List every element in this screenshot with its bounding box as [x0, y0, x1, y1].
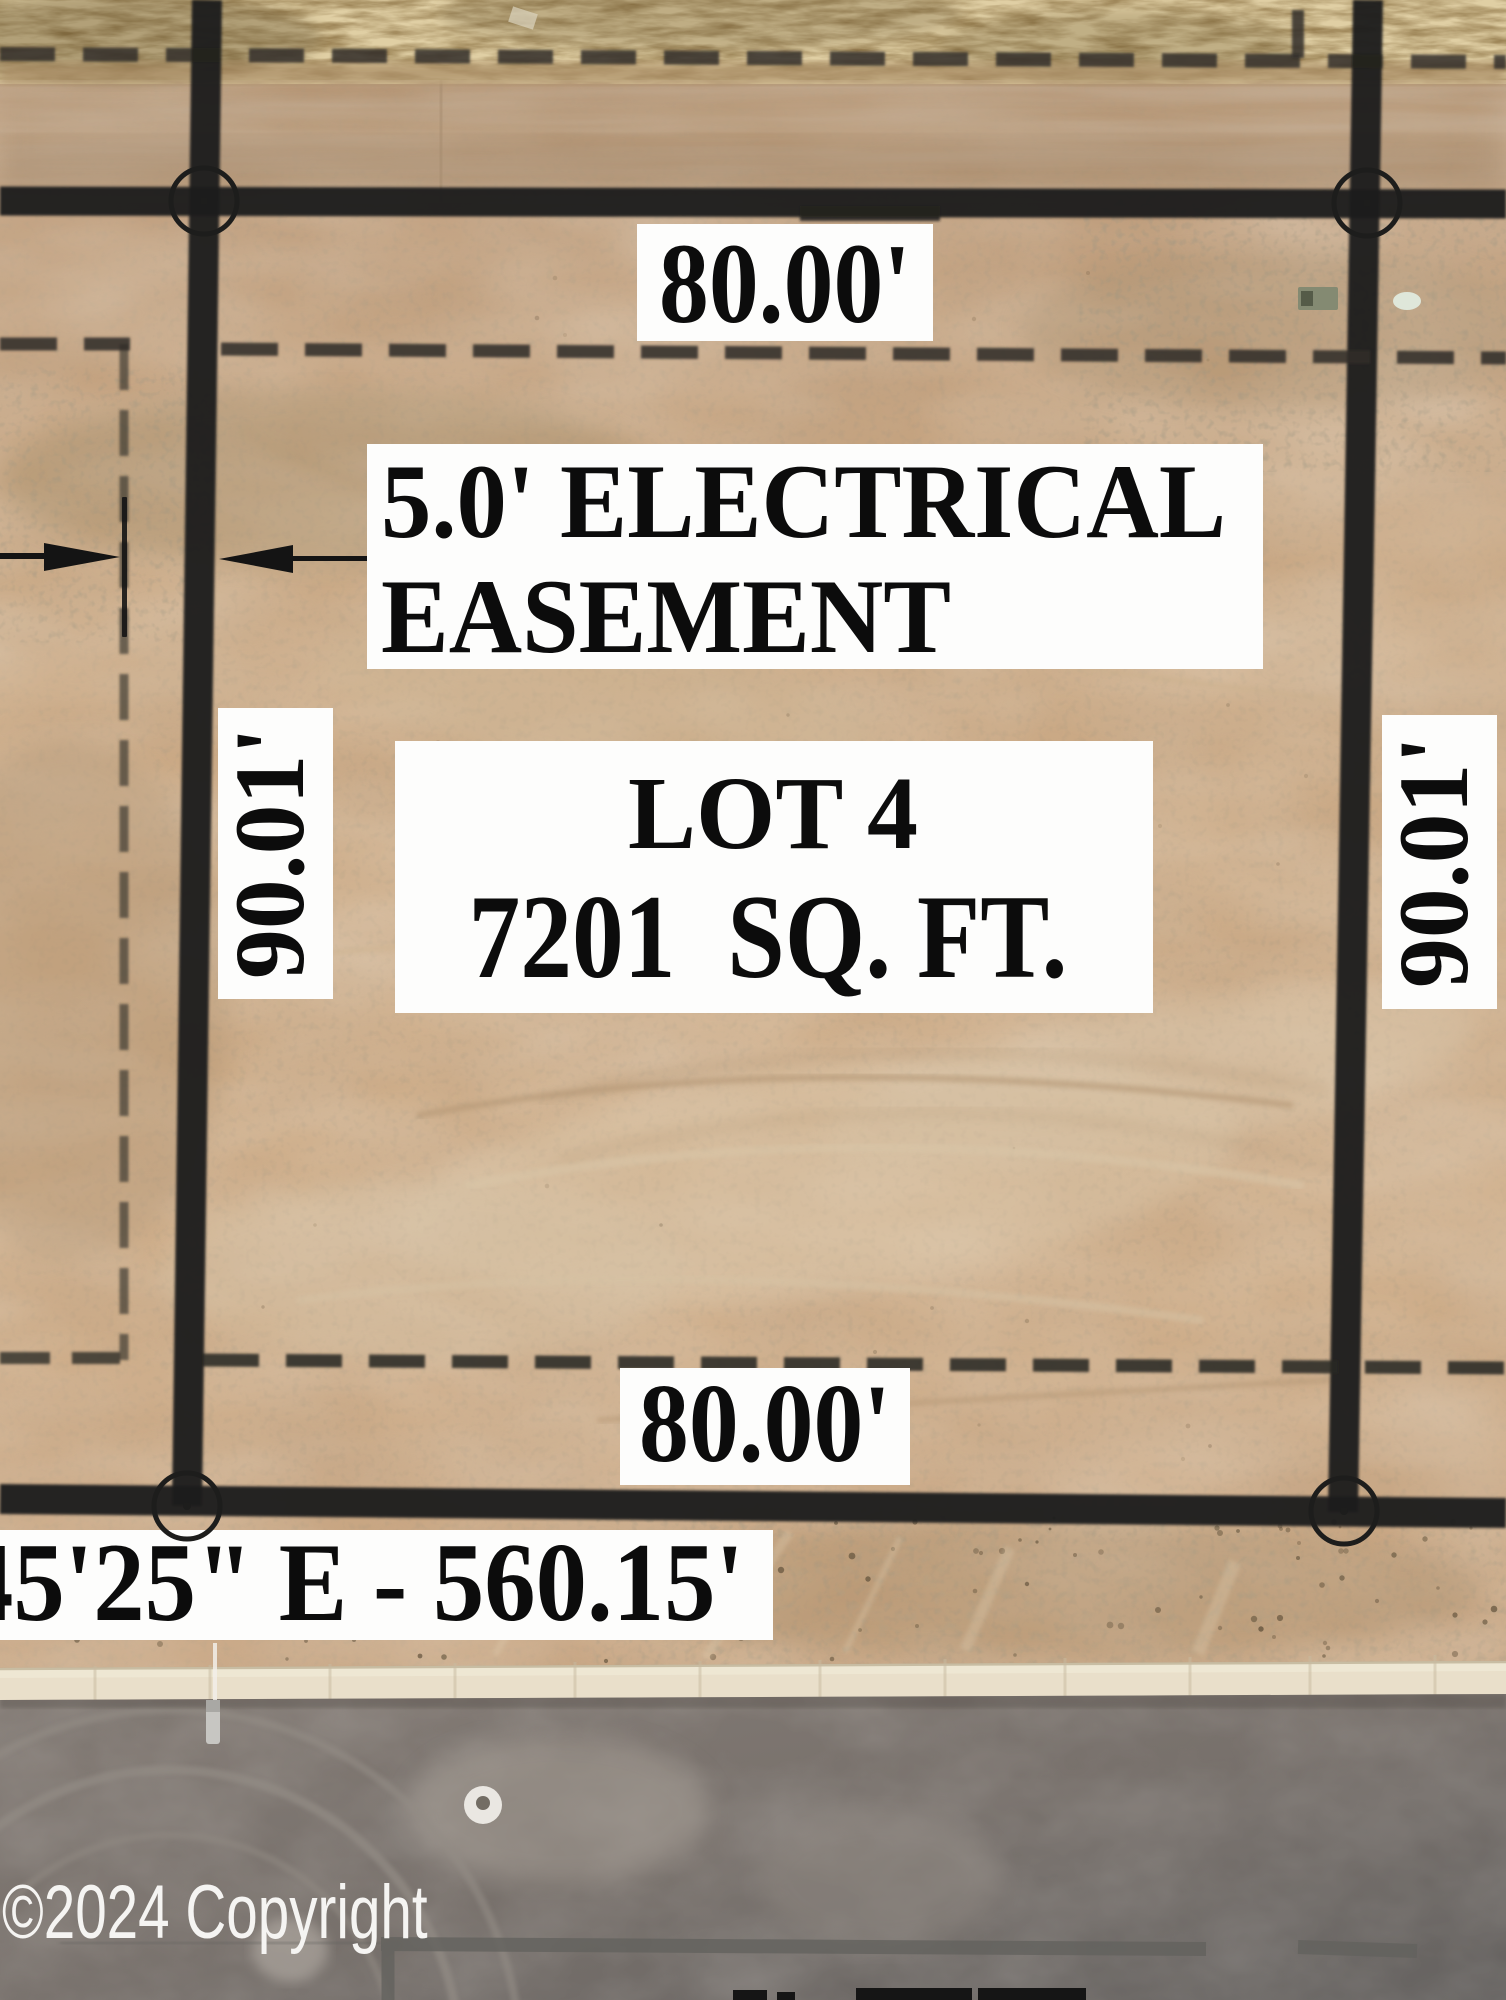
svg-text:5.0' ELECTRICAL: 5.0' ELECTRICAL	[381, 443, 1226, 560]
svg-text:LOT 4: LOT 4	[628, 756, 918, 871]
svg-text:EASEMENT: EASEMENT	[381, 558, 951, 675]
svg-text:80.00': 80.00'	[659, 220, 911, 347]
svg-text:90.01': 90.01'	[214, 727, 325, 979]
svg-text:90.01': 90.01'	[1378, 736, 1489, 988]
svg-text:©2024 Copyright: ©2024 Copyright	[2, 1870, 428, 1955]
svg-text:80.00': 80.00'	[639, 1362, 891, 1486]
svg-text:45'25" E - 560.15': 45'25" E - 560.15'	[0, 1521, 744, 1645]
svg-text:7201 SQ. FT.: 7201 SQ. FT.	[469, 870, 1068, 1003]
